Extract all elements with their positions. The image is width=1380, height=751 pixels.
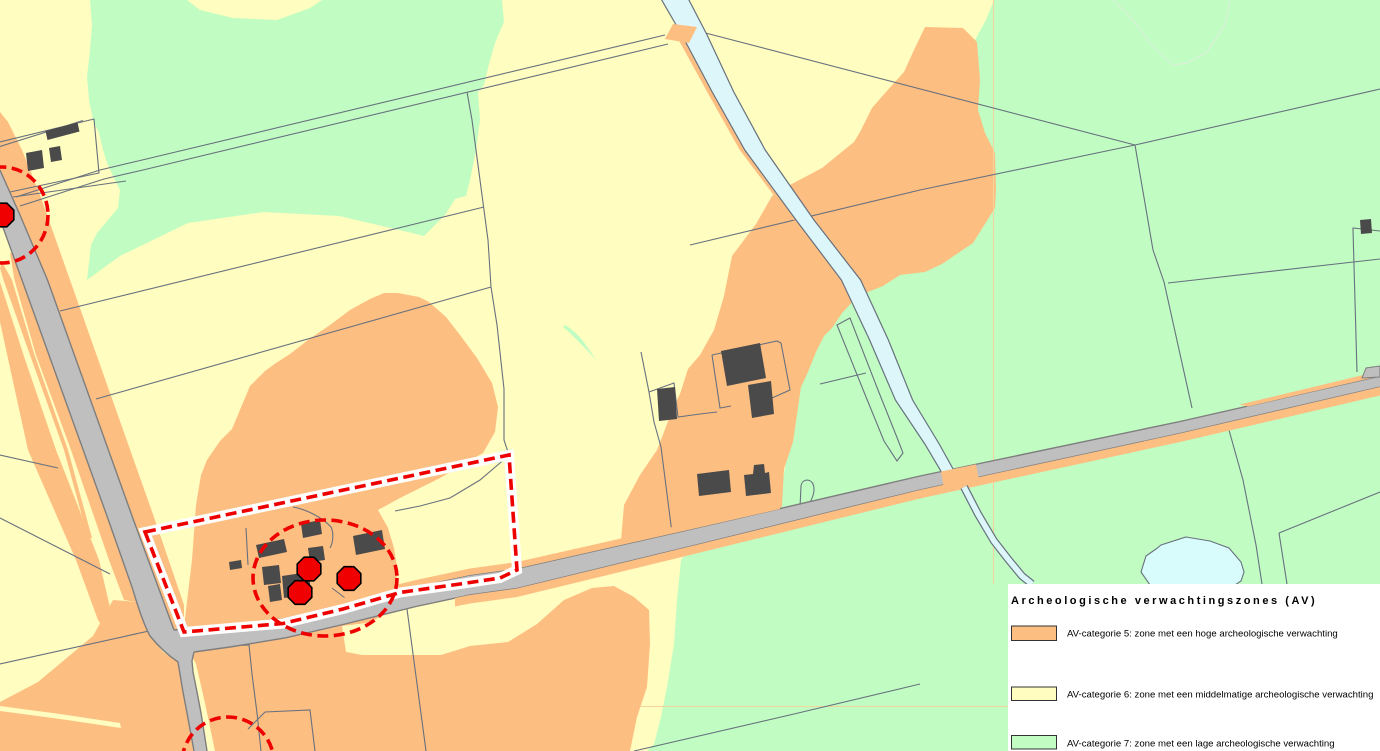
svg-text:AV-categorie 5: zone met een h: AV-categorie 5: zone met een hoge archeo… [1067, 629, 1338, 640]
svg-text:AV-categorie 6: zone met een m: AV-categorie 6: zone met een middelmatig… [1067, 690, 1373, 701]
svg-text:Archeologische verwachtingszon: Archeologische verwachtingszones (AV) [1011, 595, 1317, 607]
svg-text:AV-categorie 7: zone met een l: AV-categorie 7: zone met een lage archeo… [1067, 739, 1335, 750]
